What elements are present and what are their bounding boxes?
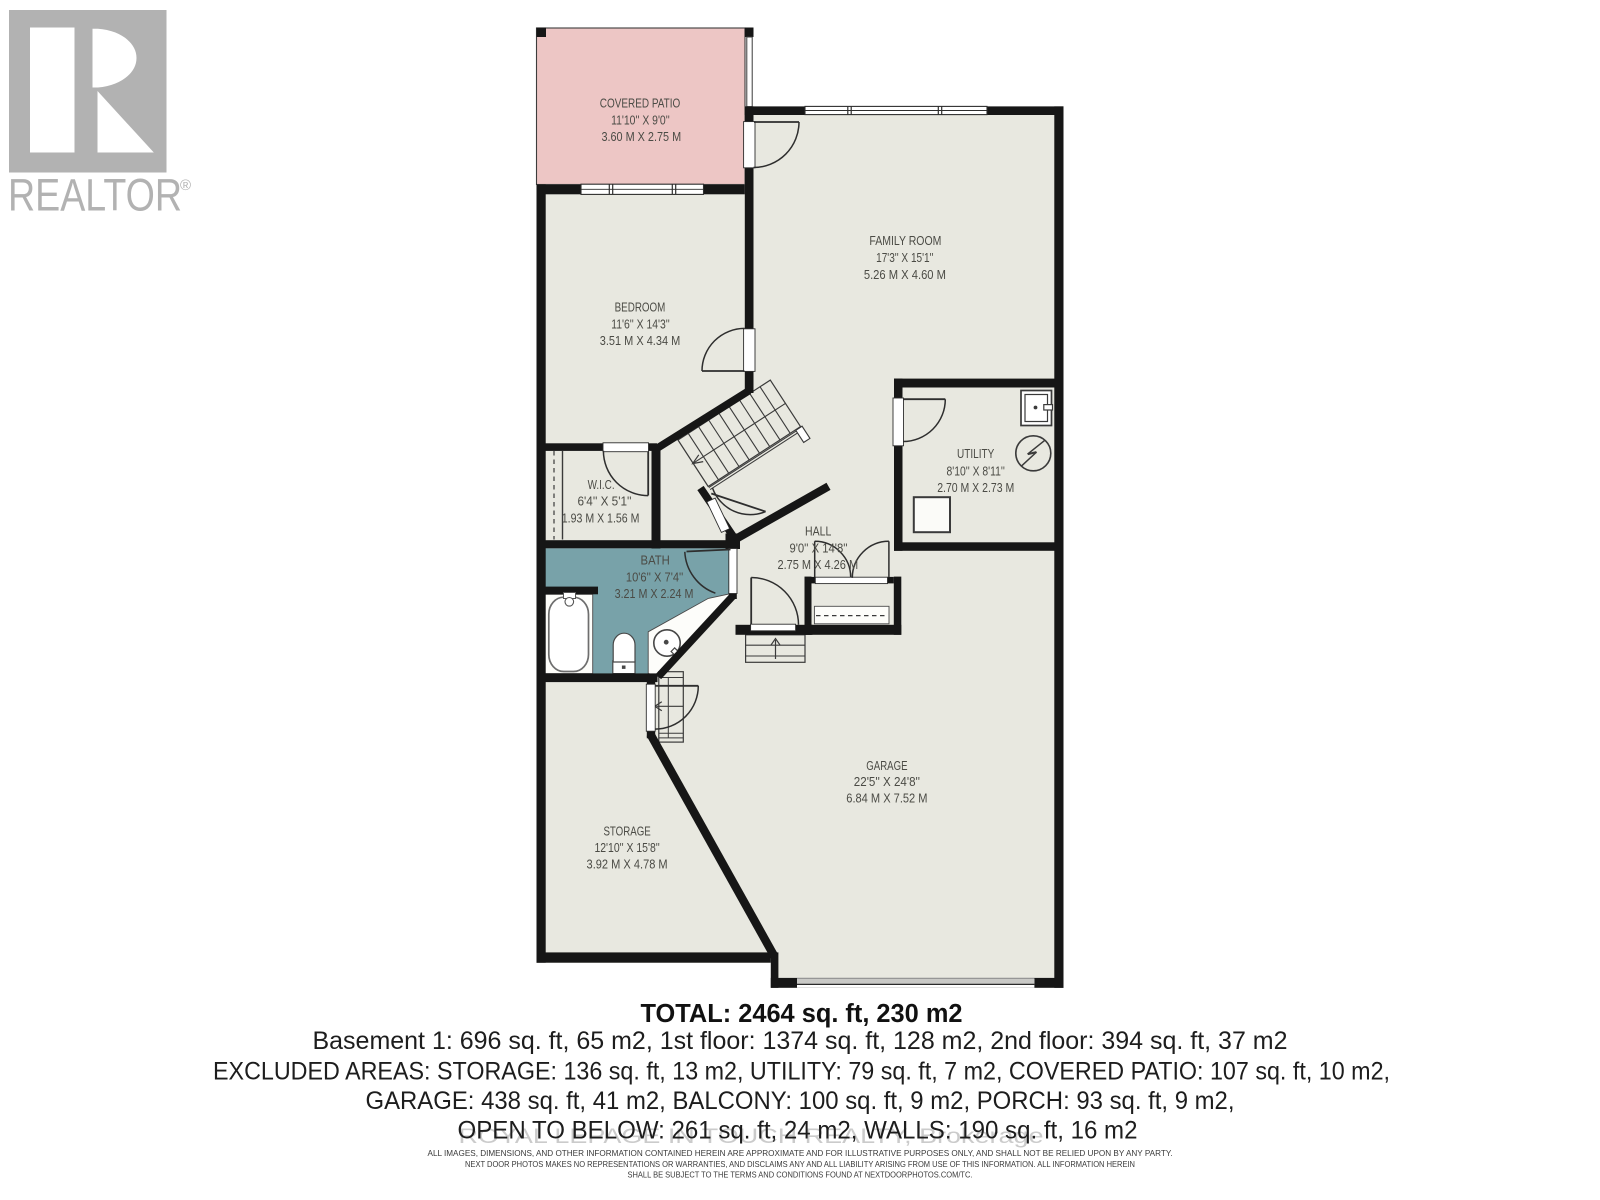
svg-text:8'10'' X 8'11'': 8'10'' X 8'11''	[947, 464, 1005, 478]
svg-text:BEDROOM: BEDROOM	[615, 301, 666, 315]
svg-text:EXCLUDED AREAS: STORAGE: 136 s: EXCLUDED AREAS: STORAGE: 136 sq. ft, 13 …	[213, 1058, 1390, 1086]
svg-text:17'3'' X 15'1'': 17'3'' X 15'1''	[876, 251, 933, 265]
svg-text:ALL IMAGES, DIMENSIONS, AND OT: ALL IMAGES, DIMENSIONS, AND OTHER INFORM…	[428, 1148, 1173, 1158]
svg-text:HALL: HALL	[805, 525, 831, 539]
svg-text:9'0'' X 14'8'': 9'0'' X 14'8''	[789, 541, 847, 555]
svg-text:3.21 M X 2.24 M: 3.21 M X 2.24 M	[615, 587, 694, 601]
svg-text:BATH: BATH	[641, 554, 670, 568]
svg-text:10'6'' X 7'4'': 10'6'' X 7'4''	[626, 571, 683, 585]
svg-text:GARAGE: 438 sq. ft, 41 m2, BAL: GARAGE: 438 sq. ft, 41 m2, BALCONY: 100 …	[366, 1087, 1235, 1115]
svg-text:3.92 M X 4.78 M: 3.92 M X 4.78 M	[587, 857, 668, 871]
svg-text:REALTOR: REALTOR	[8, 170, 182, 221]
svg-text:3.60 M X 2.75 M: 3.60 M X 2.75 M	[601, 130, 681, 144]
svg-text:6.84 M X 7.52 M: 6.84 M X 7.52 M	[846, 791, 927, 805]
svg-text:STORAGE: STORAGE	[603, 824, 650, 838]
svg-text:1.93 M X 1.56 M: 1.93 M X 1.56 M	[562, 512, 640, 526]
svg-text:11'6'' X 14'3'': 11'6'' X 14'3''	[611, 317, 670, 331]
svg-text:SHALL BE SUBJECT TO THE TERMS: SHALL BE SUBJECT TO THE TERMS AND CONDIT…	[628, 1169, 973, 1179]
svg-text:2.75 M X 4.26 M: 2.75 M X 4.26 M	[778, 558, 859, 572]
svg-text:11'10'' X 9'0'': 11'10'' X 9'0''	[611, 113, 670, 127]
svg-text:W.I.C.: W.I.C.	[588, 478, 615, 492]
svg-text:COVERED PATIO: COVERED PATIO	[600, 97, 681, 111]
svg-text:OPEN TO BELOW: 261 sq. ft, 24: OPEN TO BELOW: 261 sq. ft, 24 m2, WALLS:…	[458, 1117, 1138, 1145]
svg-text:GARAGE: GARAGE	[866, 759, 907, 773]
svg-text:UTILITY: UTILITY	[957, 447, 995, 461]
svg-text:3.51 M X 4.34 M: 3.51 M X 4.34 M	[600, 334, 681, 348]
svg-text:22'5'' X 24'8'': 22'5'' X 24'8''	[854, 775, 920, 789]
svg-text:Basement 1: 696 sq. ft, 65 m2,: Basement 1: 696 sq. ft, 65 m2, 1st floor…	[313, 1027, 1288, 1055]
svg-text:5.26 M X 4.60 M: 5.26 M X 4.60 M	[864, 268, 946, 282]
svg-text:®: ®	[180, 177, 191, 194]
svg-text:6'4'' X 5'1'': 6'4'' X 5'1''	[578, 495, 632, 509]
svg-text:2.70 M X 2.73 M: 2.70 M X 2.73 M	[937, 481, 1014, 495]
svg-text:NEXT DOOR PHOTOS MAKES NO REPR: NEXT DOOR PHOTOS MAKES NO REPRESENTATION…	[465, 1159, 1135, 1169]
svg-text:FAMILY ROOM: FAMILY ROOM	[869, 234, 941, 248]
svg-text:TOTAL: 2464 sq. ft, 230 m2: TOTAL: 2464 sq. ft, 230 m2	[641, 1000, 963, 1028]
svg-text:12'10'' X 15'8'': 12'10'' X 15'8''	[594, 841, 659, 855]
